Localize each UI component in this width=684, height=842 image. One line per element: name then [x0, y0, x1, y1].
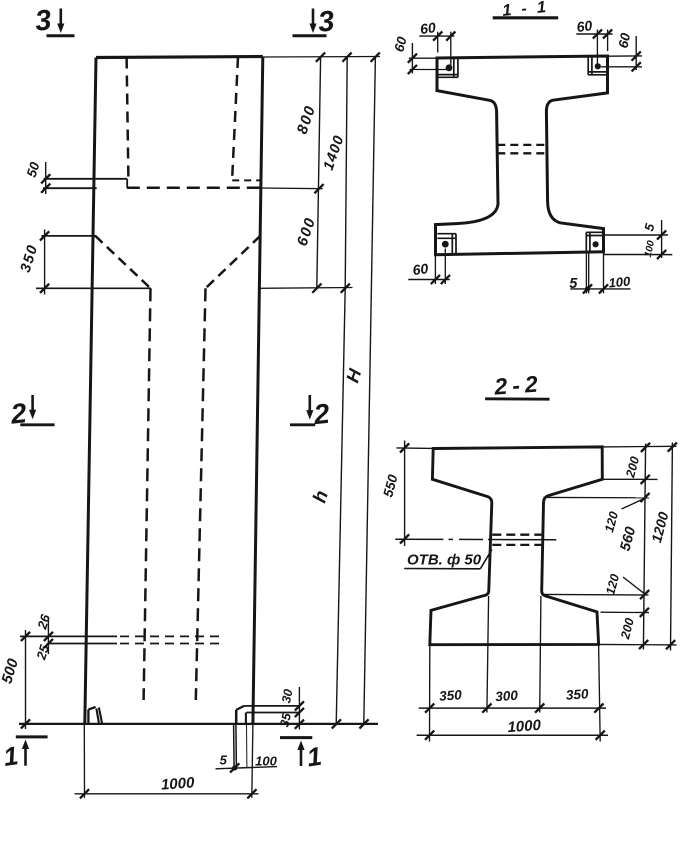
svg-text:600: 600	[294, 215, 320, 248]
svg-text:3: 3	[316, 5, 335, 39]
svg-text:60: 60	[615, 31, 633, 49]
svg-text:120: 120	[603, 573, 622, 597]
svg-text:550: 550	[380, 473, 400, 499]
svg-text:35: 35	[277, 711, 294, 729]
svg-text:60: 60	[576, 17, 594, 35]
svg-text:300: 300	[495, 688, 519, 705]
svg-text:2-2: 2-2	[493, 370, 544, 399]
svg-text:560: 560	[618, 525, 640, 553]
svg-text:26: 26	[34, 612, 53, 632]
svg-text:5: 5	[569, 276, 578, 292]
svg-text:5: 5	[641, 221, 658, 233]
svg-text:350: 350	[565, 686, 589, 703]
svg-text:60: 60	[391, 35, 410, 54]
svg-text:1000: 1000	[507, 717, 542, 736]
svg-text:25: 25	[33, 642, 52, 662]
svg-text:800: 800	[294, 103, 320, 136]
svg-text:60: 60	[412, 260, 430, 278]
svg-text:1400: 1400	[321, 133, 348, 172]
svg-text:500: 500	[0, 656, 22, 686]
svg-text:350: 350	[439, 687, 463, 704]
svg-text:60: 60	[419, 19, 437, 37]
svg-text:H: H	[342, 366, 365, 385]
svg-text:1: 1	[2, 740, 21, 772]
svg-text:1: 1	[305, 741, 324, 773]
svg-text:200: 200	[623, 455, 642, 480]
svg-text:50: 50	[24, 160, 43, 179]
svg-text:1000: 1000	[160, 774, 195, 793]
svg-text:120: 120	[602, 510, 621, 534]
svg-text:5: 5	[220, 753, 228, 768]
svg-text:100: 100	[643, 239, 657, 258]
svg-text:200: 200	[618, 617, 637, 642]
svg-text:350: 350	[18, 242, 42, 274]
svg-text:30: 30	[279, 688, 296, 705]
svg-text:ОТВ. ф 50: ОТВ. ф 50	[407, 552, 482, 569]
svg-text:3: 3	[33, 4, 52, 38]
svg-text:100: 100	[255, 754, 277, 769]
svg-text:1200: 1200	[648, 510, 672, 544]
svg-text:h: h	[310, 488, 333, 505]
svg-text:100: 100	[608, 274, 632, 291]
